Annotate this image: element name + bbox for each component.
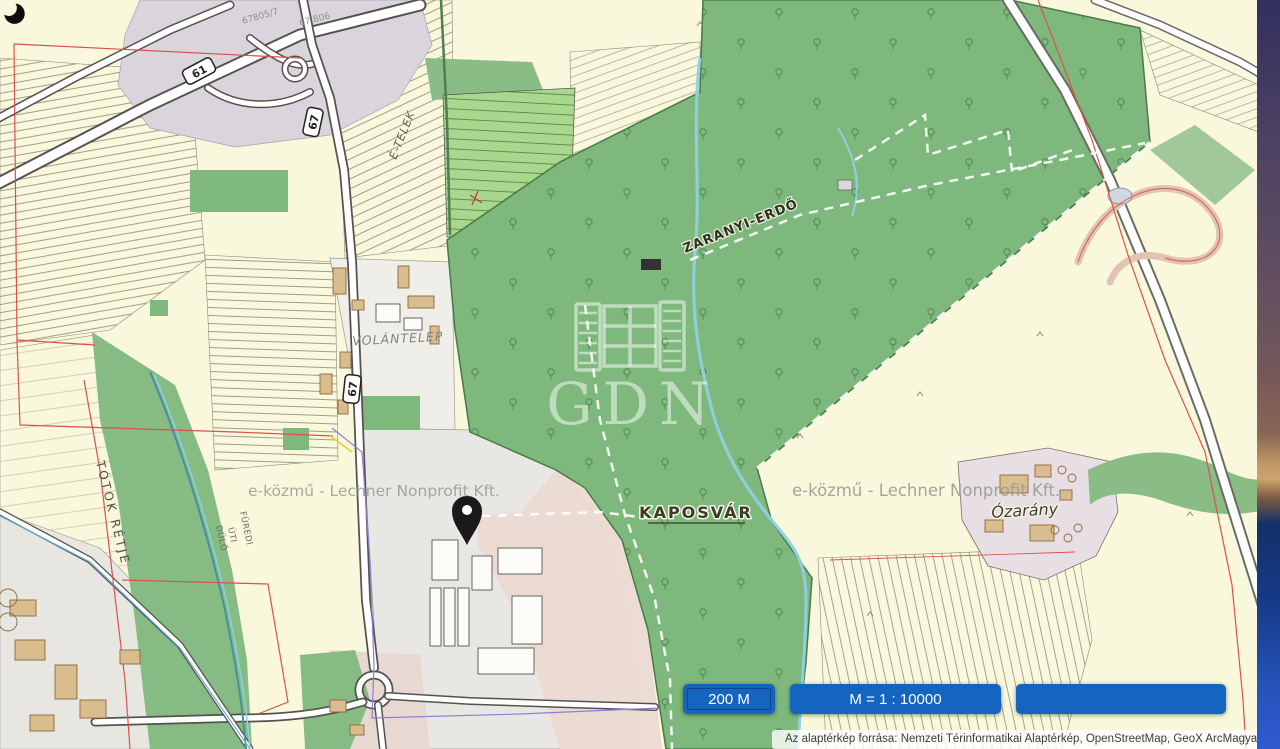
scale-bar-label: 200 M xyxy=(708,691,750,708)
scale-bar-button[interactable]: 200 M xyxy=(683,684,775,714)
label-kaposvar: KAPOSVÁR xyxy=(639,503,753,522)
gdn-logo-text: GDN xyxy=(546,370,720,438)
right-edge-gradient xyxy=(1257,0,1280,749)
scale-ratio-label: M = 1 : 10000 xyxy=(849,691,941,708)
attribution-bar: Az alaptérkép forrása: Nemzeti Térinform… xyxy=(772,730,1280,749)
watermark-ekozmu-right: e-közmű - Lechner Nonprofit Kft. xyxy=(792,481,1060,500)
extra-button[interactable] xyxy=(1016,684,1226,714)
scale-ratio-button[interactable]: M = 1 : 10000 xyxy=(790,684,1001,714)
shield-67-south: 67 xyxy=(346,381,361,398)
label-ozarany: Ózarány xyxy=(991,499,1059,521)
attribution-text: Az alaptérkép forrása: Nemzeti Térinform… xyxy=(785,733,1280,745)
map-viewport[interactable]: 61 67 67 67805/7 67 806 KAPOSVÁR ZARANYI… xyxy=(0,0,1280,749)
moon-icon[interactable] xyxy=(0,0,28,28)
map-svg[interactable]: 61 67 67 67805/7 67 806 KAPOSVÁR ZARANYI… xyxy=(0,0,1280,749)
